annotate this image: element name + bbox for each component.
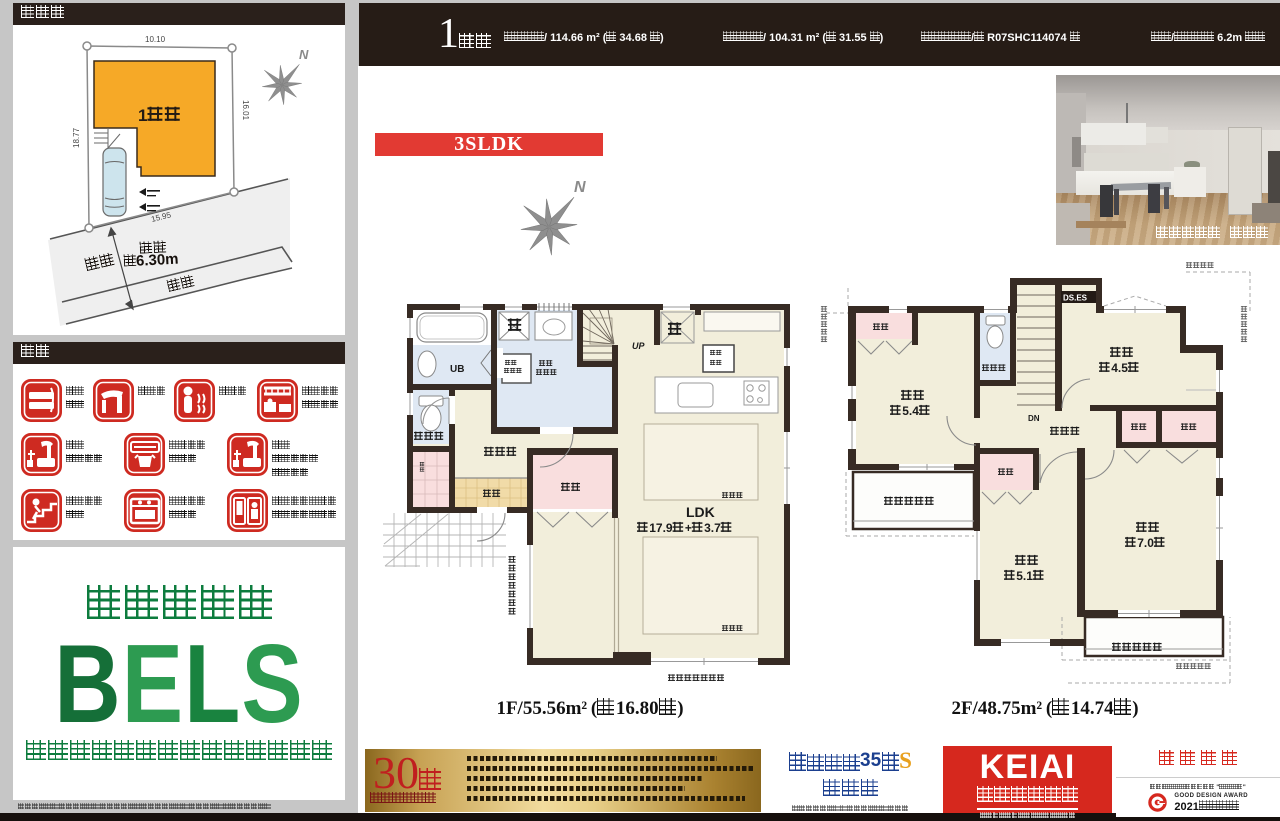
svg-text:16.01: 16.01: [241, 100, 250, 121]
svg-text:5.4: 5.4: [902, 404, 919, 418]
svg-text:7.0: 7.0: [1137, 536, 1154, 550]
svg-text:LDK: LDK: [686, 504, 715, 520]
svg-text:5.1: 5.1: [1016, 569, 1033, 583]
svg-text:10.10: 10.10: [145, 35, 166, 44]
svg-text:DS.ES: DS.ES: [1063, 294, 1088, 303]
svg-text:18.77: 18.77: [72, 127, 81, 148]
svg-text:DN: DN: [1028, 414, 1040, 423]
svg-text:1: 1: [138, 106, 147, 125]
svg-text:3.7: 3.7: [704, 521, 721, 535]
svg-text:4.5: 4.5: [1111, 361, 1128, 375]
svg-text:N: N: [299, 47, 309, 62]
svg-text:UB: UB: [450, 364, 464, 375]
svg-text:UP: UP: [632, 341, 645, 351]
svg-text:17.9: 17.9: [649, 521, 673, 535]
svg-text:+: +: [685, 521, 692, 535]
svg-text:N: N: [574, 179, 586, 196]
